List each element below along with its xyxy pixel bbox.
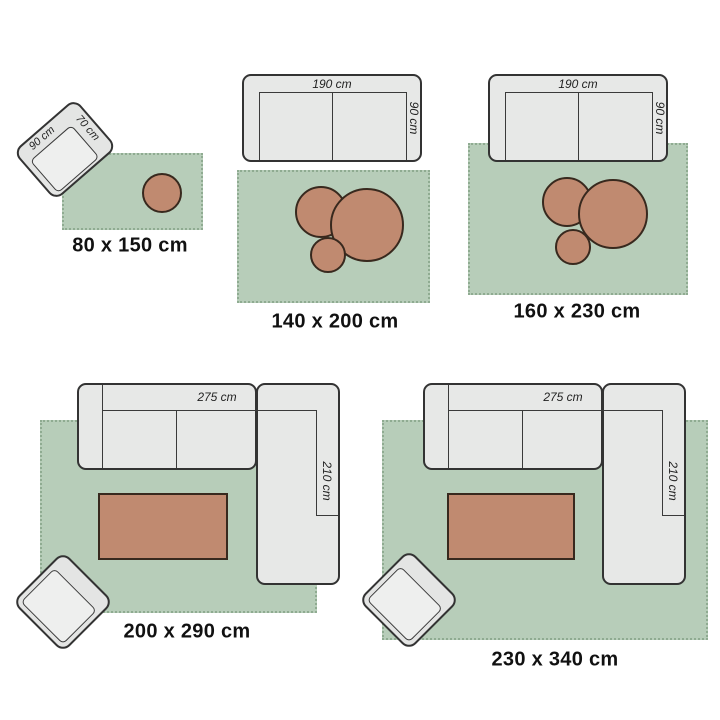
corner-sofa: 275 cm 210 cm [423,383,686,585]
chaise-inner-line-v [662,410,663,515]
sofa-width-label: 190 cm [558,77,597,91]
sofa-backrest-line [102,410,316,411]
sofa-cushion-divider [522,410,523,468]
sofa-cushion-divider [578,92,579,160]
sofa-depth-label: 90 cm [653,102,667,135]
sofa-cushion-divider [332,92,333,160]
two-seat-sofa: 190 cm 90 cm [242,74,422,162]
chaise-inner-line-v [316,410,317,515]
size-label-80x150: 80 x 150 cm [72,235,188,258]
chaise-inner-line-h [662,515,684,516]
sofa-seat [505,92,653,160]
size-label-230x340: 230 x 340 cm [491,649,618,672]
chaise-inner-line-h [316,515,338,516]
nesting-table-small [555,229,591,265]
sofa-seat [259,92,407,160]
corner-sofa: 275 cm 210 cm [77,383,340,585]
two-seat-sofa: 190 cm 90 cm [488,74,668,162]
sofa-width-label: 190 cm [312,77,351,91]
sofa-armrest-line [102,385,103,468]
size-label-140x200: 140 x 200 cm [271,311,398,334]
sofa-depth-label: 210 cm [320,461,334,500]
sofa-depth-label: 90 cm [407,102,421,135]
sofa-width-label: 275 cm [543,390,582,404]
round-side-table [142,173,182,213]
sofa-backrest-line [448,410,662,411]
rug-size-guide: 90 cm 70 cm 80 x 150 cm 190 cm 90 cm 140… [0,0,720,720]
size-label-160x230: 160 x 230 cm [513,301,640,324]
sofa-armrest-line [448,385,449,468]
sofa-cushion-divider [176,410,177,468]
sofa-depth-label: 210 cm [666,461,680,500]
nesting-table-small [310,237,346,273]
size-label-200x290: 200 x 290 cm [123,621,250,644]
sofa-width-label: 275 cm [197,390,236,404]
